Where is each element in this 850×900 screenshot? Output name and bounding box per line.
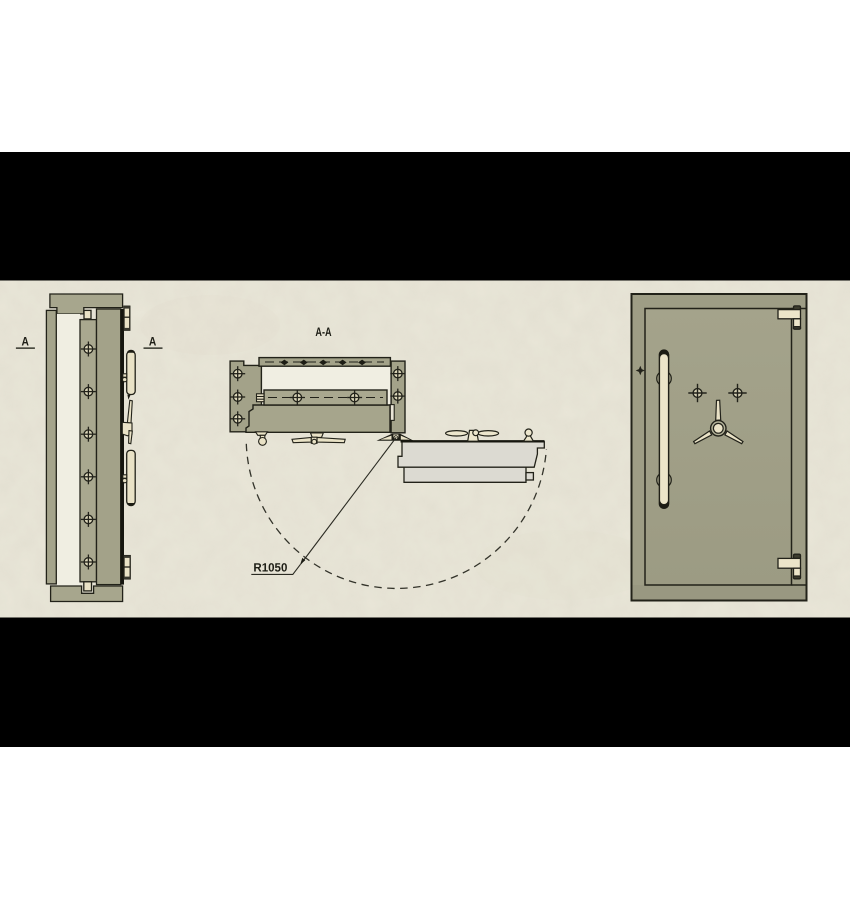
svg-text:A: A [149, 335, 156, 349]
svg-text:A-A: A-A [315, 325, 331, 339]
svg-text:R1050: R1050 [253, 561, 287, 575]
svg-text:A: A [22, 335, 29, 349]
